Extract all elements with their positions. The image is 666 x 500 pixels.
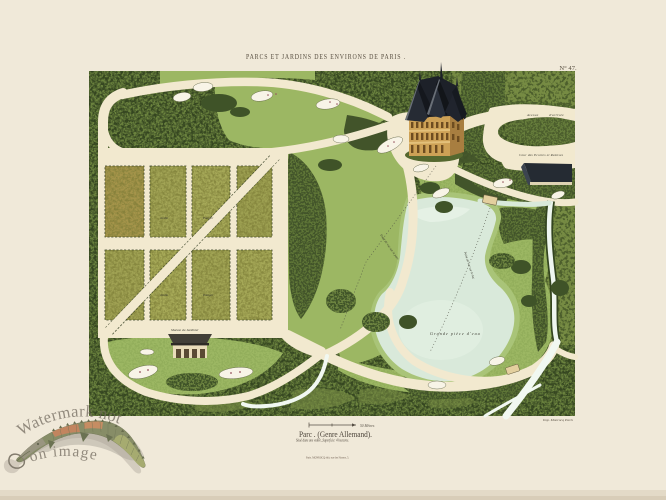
svg-text:N° 47.: N° 47.	[559, 65, 577, 72]
svg-text:Grande pièce d'eau: Grande pièce d'eau	[430, 331, 481, 336]
svg-text:Avenue: Avenue	[526, 113, 539, 117]
svg-text:Jardin: Jardin	[160, 293, 169, 297]
svg-text:Potager: Potager	[202, 216, 214, 220]
svg-text:Cour des Ecuries et Remise: Cour des Ecuries et Remises	[519, 153, 564, 157]
svg-text:50 Mètres: 50 Mètres	[360, 424, 375, 428]
svg-text:Situé dans une vallée_Superfic: Situé dans une vallée_Superficie: 4 hect…	[296, 439, 349, 443]
svg-text:PARCS ET JARDINS DES ENVIRONS: PARCS ET JARDINS DES ENVIRONS DE PARIS .	[246, 53, 406, 61]
svg-text:Jardin: Jardin	[160, 216, 169, 220]
svg-text:Maison du Jardinier: Maison du Jardinier	[170, 328, 199, 332]
svg-text:Potager: Potager	[202, 293, 214, 297]
svg-text:d'arrivée: d'arrivée	[549, 113, 564, 117]
svg-text:Imp. Monrocq Paris: Imp. Monrocq Paris	[542, 418, 574, 422]
